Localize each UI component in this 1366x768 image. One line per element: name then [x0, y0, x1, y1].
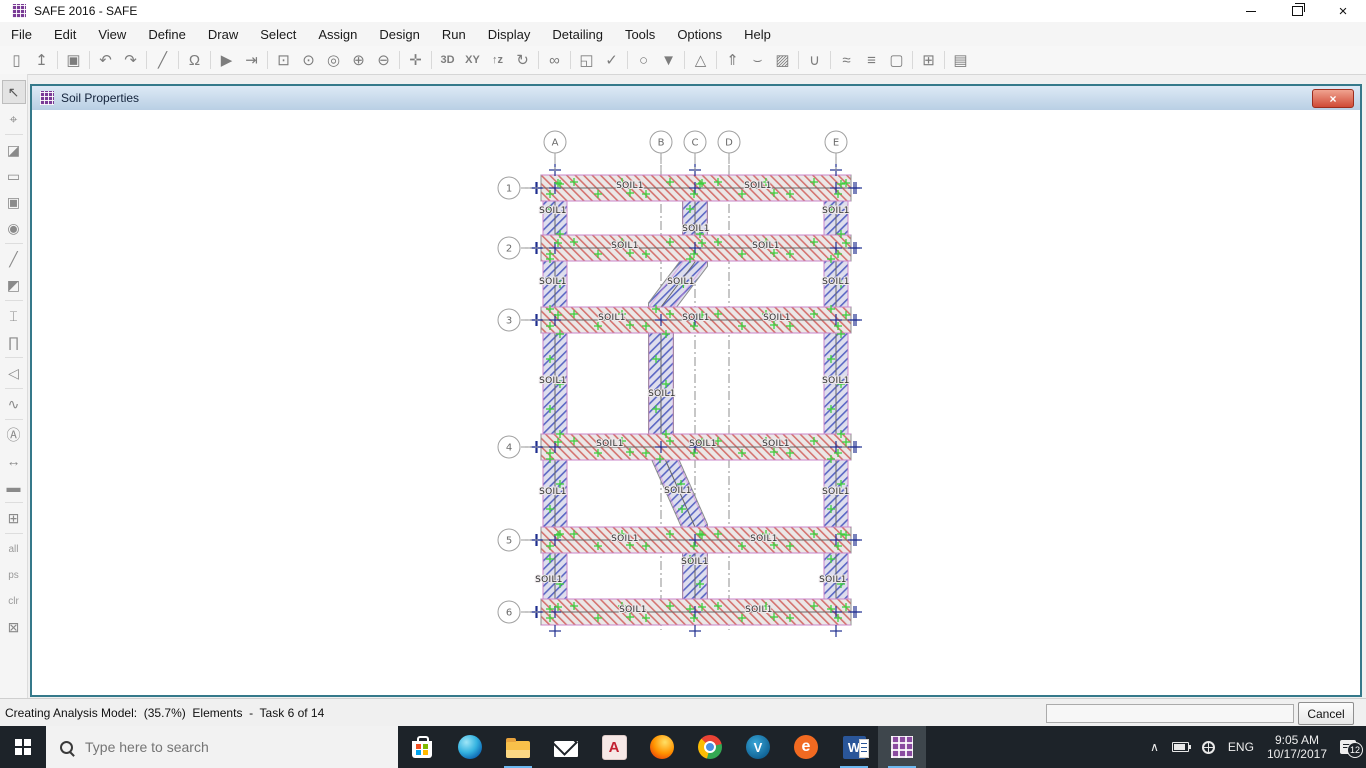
taskbar-app-chrome[interactable] — [686, 726, 734, 768]
toolbar-separator — [146, 51, 147, 69]
toolbar-zoom-in-icon[interactable]: ⊕ — [346, 48, 371, 72]
tool-draw-dimension-icon[interactable]: ↔ — [3, 450, 25, 472]
soil-label: SOIL1 — [598, 313, 626, 323]
grid-label: C — [692, 138, 699, 149]
toolbar-lock-model-icon[interactable]: Ω — [182, 48, 207, 72]
toolbar-object-ring-icon[interactable]: ○ — [631, 48, 656, 72]
chrome-icon — [698, 735, 722, 759]
tool-deselect-icon[interactable]: ⊠ — [3, 616, 25, 638]
toolbar-report-icon[interactable]: ▤ — [948, 48, 973, 72]
status-text: Creating Analysis Model: (35.7%) Element… — [5, 706, 324, 720]
grid-label: 5 — [506, 536, 512, 547]
toolbar-shrink-objects-icon[interactable]: ◱ — [574, 48, 599, 72]
toolbar-save-icon[interactable]: ▣ — [61, 48, 86, 72]
menu-detailing[interactable]: Detailing — [541, 24, 614, 45]
soil-label: SOIL1 — [539, 277, 567, 287]
toolbar-mesh-options-icon[interactable]: △ — [688, 48, 713, 72]
taskbar: AVeW ∧ ENG 9:05 AM 10/17/2017 12 — [0, 726, 1366, 768]
soil-label: SOIL1 — [682, 313, 710, 323]
status-bar: Creating Analysis Model: (35.7%) Element… — [0, 698, 1366, 727]
toolbar-separator — [830, 51, 831, 69]
mail-icon — [554, 741, 578, 757]
soil-properties-window: Soil Properties × ABCDE123456SOIL1SOIL1S… — [30, 84, 1362, 697]
left-toolbar-separator — [5, 533, 23, 534]
microsoft-store-icon — [412, 741, 432, 758]
clock[interactable]: 9:05 AM 10/17/2017 — [1267, 733, 1327, 761]
toolbar-separator — [267, 51, 268, 69]
soil-label: SOIL1 — [539, 376, 567, 386]
left-toolbar-separator — [5, 134, 23, 135]
taskbar-search[interactable] — [46, 726, 398, 768]
notification-center[interactable]: 12 — [1340, 740, 1356, 754]
grid-label: 4 — [506, 443, 512, 454]
search-icon — [60, 741, 73, 754]
toolbar-separator — [716, 51, 717, 69]
taskbar-app-file-explorer[interactable] — [494, 726, 542, 768]
menu-draw[interactable]: Draw — [197, 24, 249, 45]
toolbar-named-views-icon[interactable]: ∞ — [542, 48, 567, 72]
toolbar-select-region-icon[interactable]: ▢ — [884, 48, 909, 72]
toolbar-draw-line-icon[interactable]: ╱ — [150, 48, 175, 72]
menu-view[interactable]: View — [87, 24, 137, 45]
restore-button[interactable] — [1274, 0, 1320, 22]
left-toolbar-separator — [5, 388, 23, 389]
toolbar-show-grid-icon[interactable]: ⊞ — [916, 48, 941, 72]
clock-time: 9:05 AM — [1267, 733, 1327, 747]
tool-draw-ramp-icon[interactable]: ◁ — [3, 362, 25, 384]
soil-properties-close-button[interactable]: × — [1312, 89, 1354, 108]
taskbar-app-autocad[interactable]: A — [590, 726, 638, 768]
soil-label: SOIL1 — [822, 277, 850, 287]
windows-logo-icon — [15, 739, 31, 755]
screen: SAFE 2016 - SAFE × FileEditViewDefineDra… — [0, 0, 1366, 768]
edge-icon — [458, 735, 482, 759]
grid-label: B — [658, 138, 665, 149]
tool-draw-slab-icon[interactable]: ◪ — [3, 139, 25, 161]
menu-help[interactable]: Help — [733, 24, 782, 45]
menu-define[interactable]: Define — [137, 24, 197, 45]
title-bar: SAFE 2016 - SAFE × — [0, 0, 1366, 23]
toolbar-assign-down-icon[interactable]: ▼ — [656, 48, 681, 72]
tool-quick-draw-beam-icon[interactable]: ◩ — [3, 274, 25, 296]
menu-file[interactable]: File — [0, 24, 43, 45]
soil-label: SOIL1 — [752, 241, 780, 251]
notification-badge: 12 — [1347, 742, 1363, 758]
menu-bar: FileEditViewDefineDrawSelectAssignDesign… — [0, 22, 1366, 47]
toolbar-separator — [627, 51, 628, 69]
tool-draw-rect-slab-icon[interactable]: ▭ — [3, 165, 25, 187]
soil-label: SOIL1 — [689, 439, 717, 449]
menu-display[interactable]: Display — [477, 24, 542, 45]
soil-label: SOIL1 — [667, 277, 695, 287]
toolbar-separator — [798, 51, 799, 69]
menu-tools[interactable]: Tools — [614, 24, 666, 45]
restore-icon — [1292, 6, 1303, 16]
soil-label: SOIL1 — [539, 487, 567, 497]
menu-run[interactable]: Run — [431, 24, 477, 45]
soil-label: SOIL1 — [819, 575, 847, 585]
tool-draw-curve-icon[interactable]: ∿ — [3, 393, 25, 415]
menu-edit[interactable]: Edit — [43, 24, 87, 45]
toolbar-separator — [210, 51, 211, 69]
tool-assign-label-icon[interactable]: Ⓐ — [3, 424, 25, 446]
soil-label: SOIL1 — [822, 206, 850, 216]
soil-label: SOIL1 — [616, 181, 644, 191]
menu-design[interactable]: Design — [368, 24, 430, 45]
toolbar-deformed-shape-icon[interactable]: ⌣ — [745, 48, 770, 72]
taskbar-app-firefox[interactable] — [638, 726, 686, 768]
taskbar-app-word[interactable]: W — [830, 726, 878, 768]
toolbar-separator — [178, 51, 179, 69]
left-toolbar-separator — [5, 243, 23, 244]
minimize-icon — [1246, 10, 1256, 12]
network-icon[interactable] — [1202, 741, 1215, 754]
start-button[interactable] — [0, 726, 46, 768]
toolbar-display-image-icon[interactable]: ▨ — [770, 48, 795, 72]
firefox-icon — [650, 735, 674, 759]
safe-icon — [891, 736, 913, 758]
soil-label: SOIL1 — [682, 224, 710, 234]
file-explorer-icon — [506, 741, 530, 758]
progress-bar — [1046, 704, 1294, 723]
left-toolbar-separator — [5, 357, 23, 358]
toolbar-separator — [89, 51, 90, 69]
grid-label: E — [833, 138, 839, 149]
soil-label: SOIL1 — [681, 557, 709, 567]
toolbar-undo-icon[interactable]: ↶ — [93, 48, 118, 72]
grid-label: 2 — [506, 244, 512, 255]
toolbar-separator — [399, 51, 400, 69]
toolbar-separator — [912, 51, 913, 69]
soil-label: SOIL1 — [744, 181, 772, 191]
toolbar-open-file-icon[interactable]: ↥ — [29, 48, 54, 72]
menu-select[interactable]: Select — [249, 24, 307, 45]
main-toolbar: ▯↥▣↶↷╱Ω▶⇥⊡⊙◎⊕⊖✛3DXY↑z↻∞◱✓○▼△⇑⌣▨∪≈≡▢⊞▤ — [0, 46, 1366, 75]
soil-properties-icon — [40, 91, 54, 105]
v-player-icon: V — [746, 735, 770, 759]
toolbar-view-z[interactable]: ↑z — [485, 48, 510, 72]
toolbar-show-forces-icon[interactable]: ∪ — [802, 48, 827, 72]
close-button[interactable]: × — [1320, 0, 1366, 22]
clock-date: 10/17/2017 — [1267, 747, 1327, 761]
toolbar-separator — [538, 51, 539, 69]
tool-select-all[interactable]: all — [3, 538, 25, 560]
toolbar-view-3d[interactable]: 3D — [435, 48, 460, 72]
left-toolbar-separator — [5, 502, 23, 503]
grid-label: A — [552, 138, 559, 149]
toolbar-run-analysis-icon[interactable]: ▶ — [214, 48, 239, 72]
toolbar-display-options-icon[interactable]: ≡ — [859, 48, 884, 72]
toolbar-redo-icon[interactable]: ↷ — [118, 48, 143, 72]
grid-label: D — [725, 138, 733, 149]
tool-set-view-window-icon[interactable]: ⊞ — [3, 507, 25, 529]
tool-draw-beam-icon[interactable]: ╱ — [3, 248, 25, 270]
toolbar-separator — [570, 51, 571, 69]
window-title: SAFE 2016 - SAFE — [34, 4, 137, 18]
toolbar-view-xy[interactable]: XY — [460, 48, 485, 72]
soil-label: SOIL1 — [648, 389, 676, 399]
tool-reshape-object-icon[interactable]: ⌖ — [3, 108, 25, 130]
toolbar-separator — [684, 51, 685, 69]
toolbar-previous-zoom-icon[interactable]: ◎ — [321, 48, 346, 72]
left-toolbar-separator — [5, 419, 23, 420]
menu-options[interactable]: Options — [666, 24, 733, 45]
system-tray: ∧ ENG 9:05 AM 10/17/2017 12 — [1150, 726, 1366, 768]
toolbar-support-display-icon[interactable]: ⇑ — [720, 48, 745, 72]
internet-explorer-icon: e — [794, 735, 818, 759]
taskbar-app-microsoft-store[interactable] — [398, 726, 446, 768]
left-toolbar: ↖⌖◪▭▣◉╱◩⌶∏◁∿Ⓐ↔▬⊞allpsclr⊠ — [0, 74, 28, 702]
taskbar-app-internet-explorer[interactable]: e — [782, 726, 830, 768]
tool-draw-wall-icon[interactable]: ∏ — [3, 331, 25, 353]
model-canvas[interactable]: ABCDE123456SOIL1SOIL1SOIL1SOIL1SOIL1SOIL… — [32, 110, 1360, 695]
toolbar-rotate-view-icon[interactable]: ↻ — [510, 48, 535, 72]
autocad-icon: A — [602, 735, 627, 760]
soil-label: SOIL1 — [822, 487, 850, 497]
toolbar-design-strips-icon[interactable]: ≈ — [834, 48, 859, 72]
close-icon: × — [1339, 4, 1348, 19]
soil-label: SOIL1 — [611, 241, 639, 251]
tool-draw-column-icon[interactable]: ⌶ — [3, 305, 25, 327]
soil-label: SOIL1 — [745, 605, 773, 615]
soil-label: SOIL1 — [664, 486, 692, 496]
taskbar-app-v-player[interactable]: V — [734, 726, 782, 768]
battery-icon[interactable] — [1172, 742, 1189, 752]
word-icon: W — [843, 736, 866, 759]
soil-label: SOIL1 — [535, 575, 563, 585]
tool-previous-selection[interactable]: ps — [3, 564, 25, 586]
grid-label: 3 — [506, 316, 512, 327]
toolbar-pan-icon[interactable]: ✛ — [403, 48, 428, 72]
tool-draw-circle-area-icon[interactable]: ◉ — [3, 217, 25, 239]
toolbar-rubber-band-zoom-icon[interactable]: ⊡ — [271, 48, 296, 72]
taskbar-app-mail[interactable] — [542, 726, 590, 768]
soil-properties-titlebar[interactable]: Soil Properties × — [32, 86, 1360, 111]
toolbar-separator — [57, 51, 58, 69]
soil-label: SOIL1 — [762, 439, 790, 449]
tool-quick-draw-area-icon[interactable]: ▣ — [3, 191, 25, 213]
safe-app-icon — [12, 4, 26, 18]
soil-properties-plan-view[interactable]: ABCDE123456SOIL1SOIL1SOIL1SOIL1SOIL1SOIL… — [32, 110, 1360, 695]
tool-draw-design-strip-icon[interactable]: ▬ — [3, 476, 25, 498]
grid-label: 6 — [506, 608, 512, 619]
soil-label: SOIL1 — [763, 313, 791, 323]
cancel-button[interactable]: Cancel — [1298, 702, 1354, 725]
tool-clear-selection[interactable]: clr — [3, 590, 25, 612]
search-input[interactable] — [83, 738, 367, 756]
toolbar-zoom-out-icon[interactable]: ⊖ — [371, 48, 396, 72]
soil-properties-title: Soil Properties — [61, 91, 139, 105]
toolbar-separator — [431, 51, 432, 69]
toolbar-check-model-icon[interactable]: ✓ — [599, 48, 624, 72]
minimize-button[interactable] — [1228, 0, 1274, 22]
language-indicator[interactable]: ENG — [1228, 740, 1254, 754]
left-toolbar-separator — [5, 300, 23, 301]
toolbar-run-to-wall-icon[interactable]: ⇥ — [239, 48, 264, 72]
soil-label: SOIL1 — [822, 376, 850, 386]
toolbar-new-model-icon[interactable]: ▯ — [4, 48, 29, 72]
tray-chevron-icon[interactable]: ∧ — [1150, 740, 1159, 754]
toolbar-separator — [944, 51, 945, 69]
soil-label: SOIL1 — [619, 605, 647, 615]
taskbar-app-safe[interactable] — [878, 726, 926, 768]
soil-label: SOIL1 — [539, 206, 567, 216]
soil-label: SOIL1 — [596, 439, 624, 449]
soil-label: SOIL1 — [750, 534, 778, 544]
grid-label: 1 — [506, 184, 512, 195]
taskbar-app-edge[interactable] — [446, 726, 494, 768]
tool-select-pointer-icon[interactable]: ↖ — [2, 80, 26, 104]
soil-label: SOIL1 — [611, 534, 639, 544]
menu-assign[interactable]: Assign — [307, 24, 368, 45]
toolbar-restore-full-view-icon[interactable]: ⊙ — [296, 48, 321, 72]
